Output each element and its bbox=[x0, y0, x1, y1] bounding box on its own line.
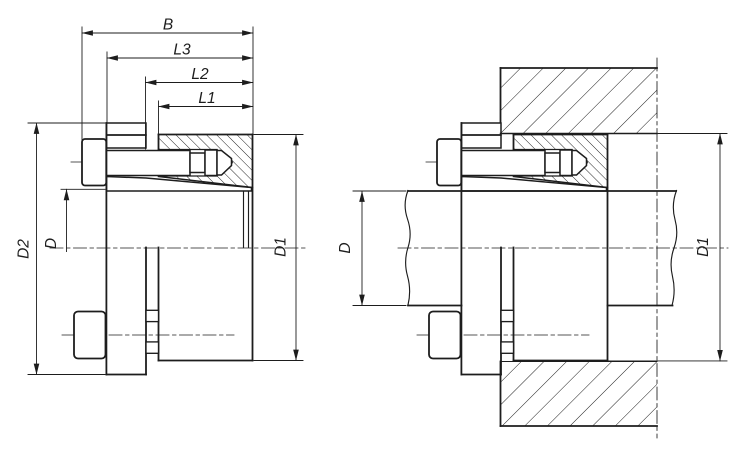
dimension-label-d1-right: D1 bbox=[695, 237, 712, 257]
hub-lower-block bbox=[501, 362, 658, 427]
dimension-label-d-right: D bbox=[337, 242, 354, 253]
dimension-label-l2: L2 bbox=[191, 66, 209, 83]
hub-upper-block bbox=[501, 68, 658, 134]
dimension-label-d: D bbox=[43, 238, 60, 249]
technical-drawing: B L3 L2 L1 D2 D bbox=[0, 0, 750, 454]
dimension-label-l3: L3 bbox=[173, 42, 191, 59]
dimension-label-l1: L1 bbox=[198, 90, 215, 107]
dimension-label-b: B bbox=[163, 17, 173, 34]
dimension-label-d1: D1 bbox=[273, 237, 290, 257]
dimension-label-d2: D2 bbox=[16, 239, 33, 259]
